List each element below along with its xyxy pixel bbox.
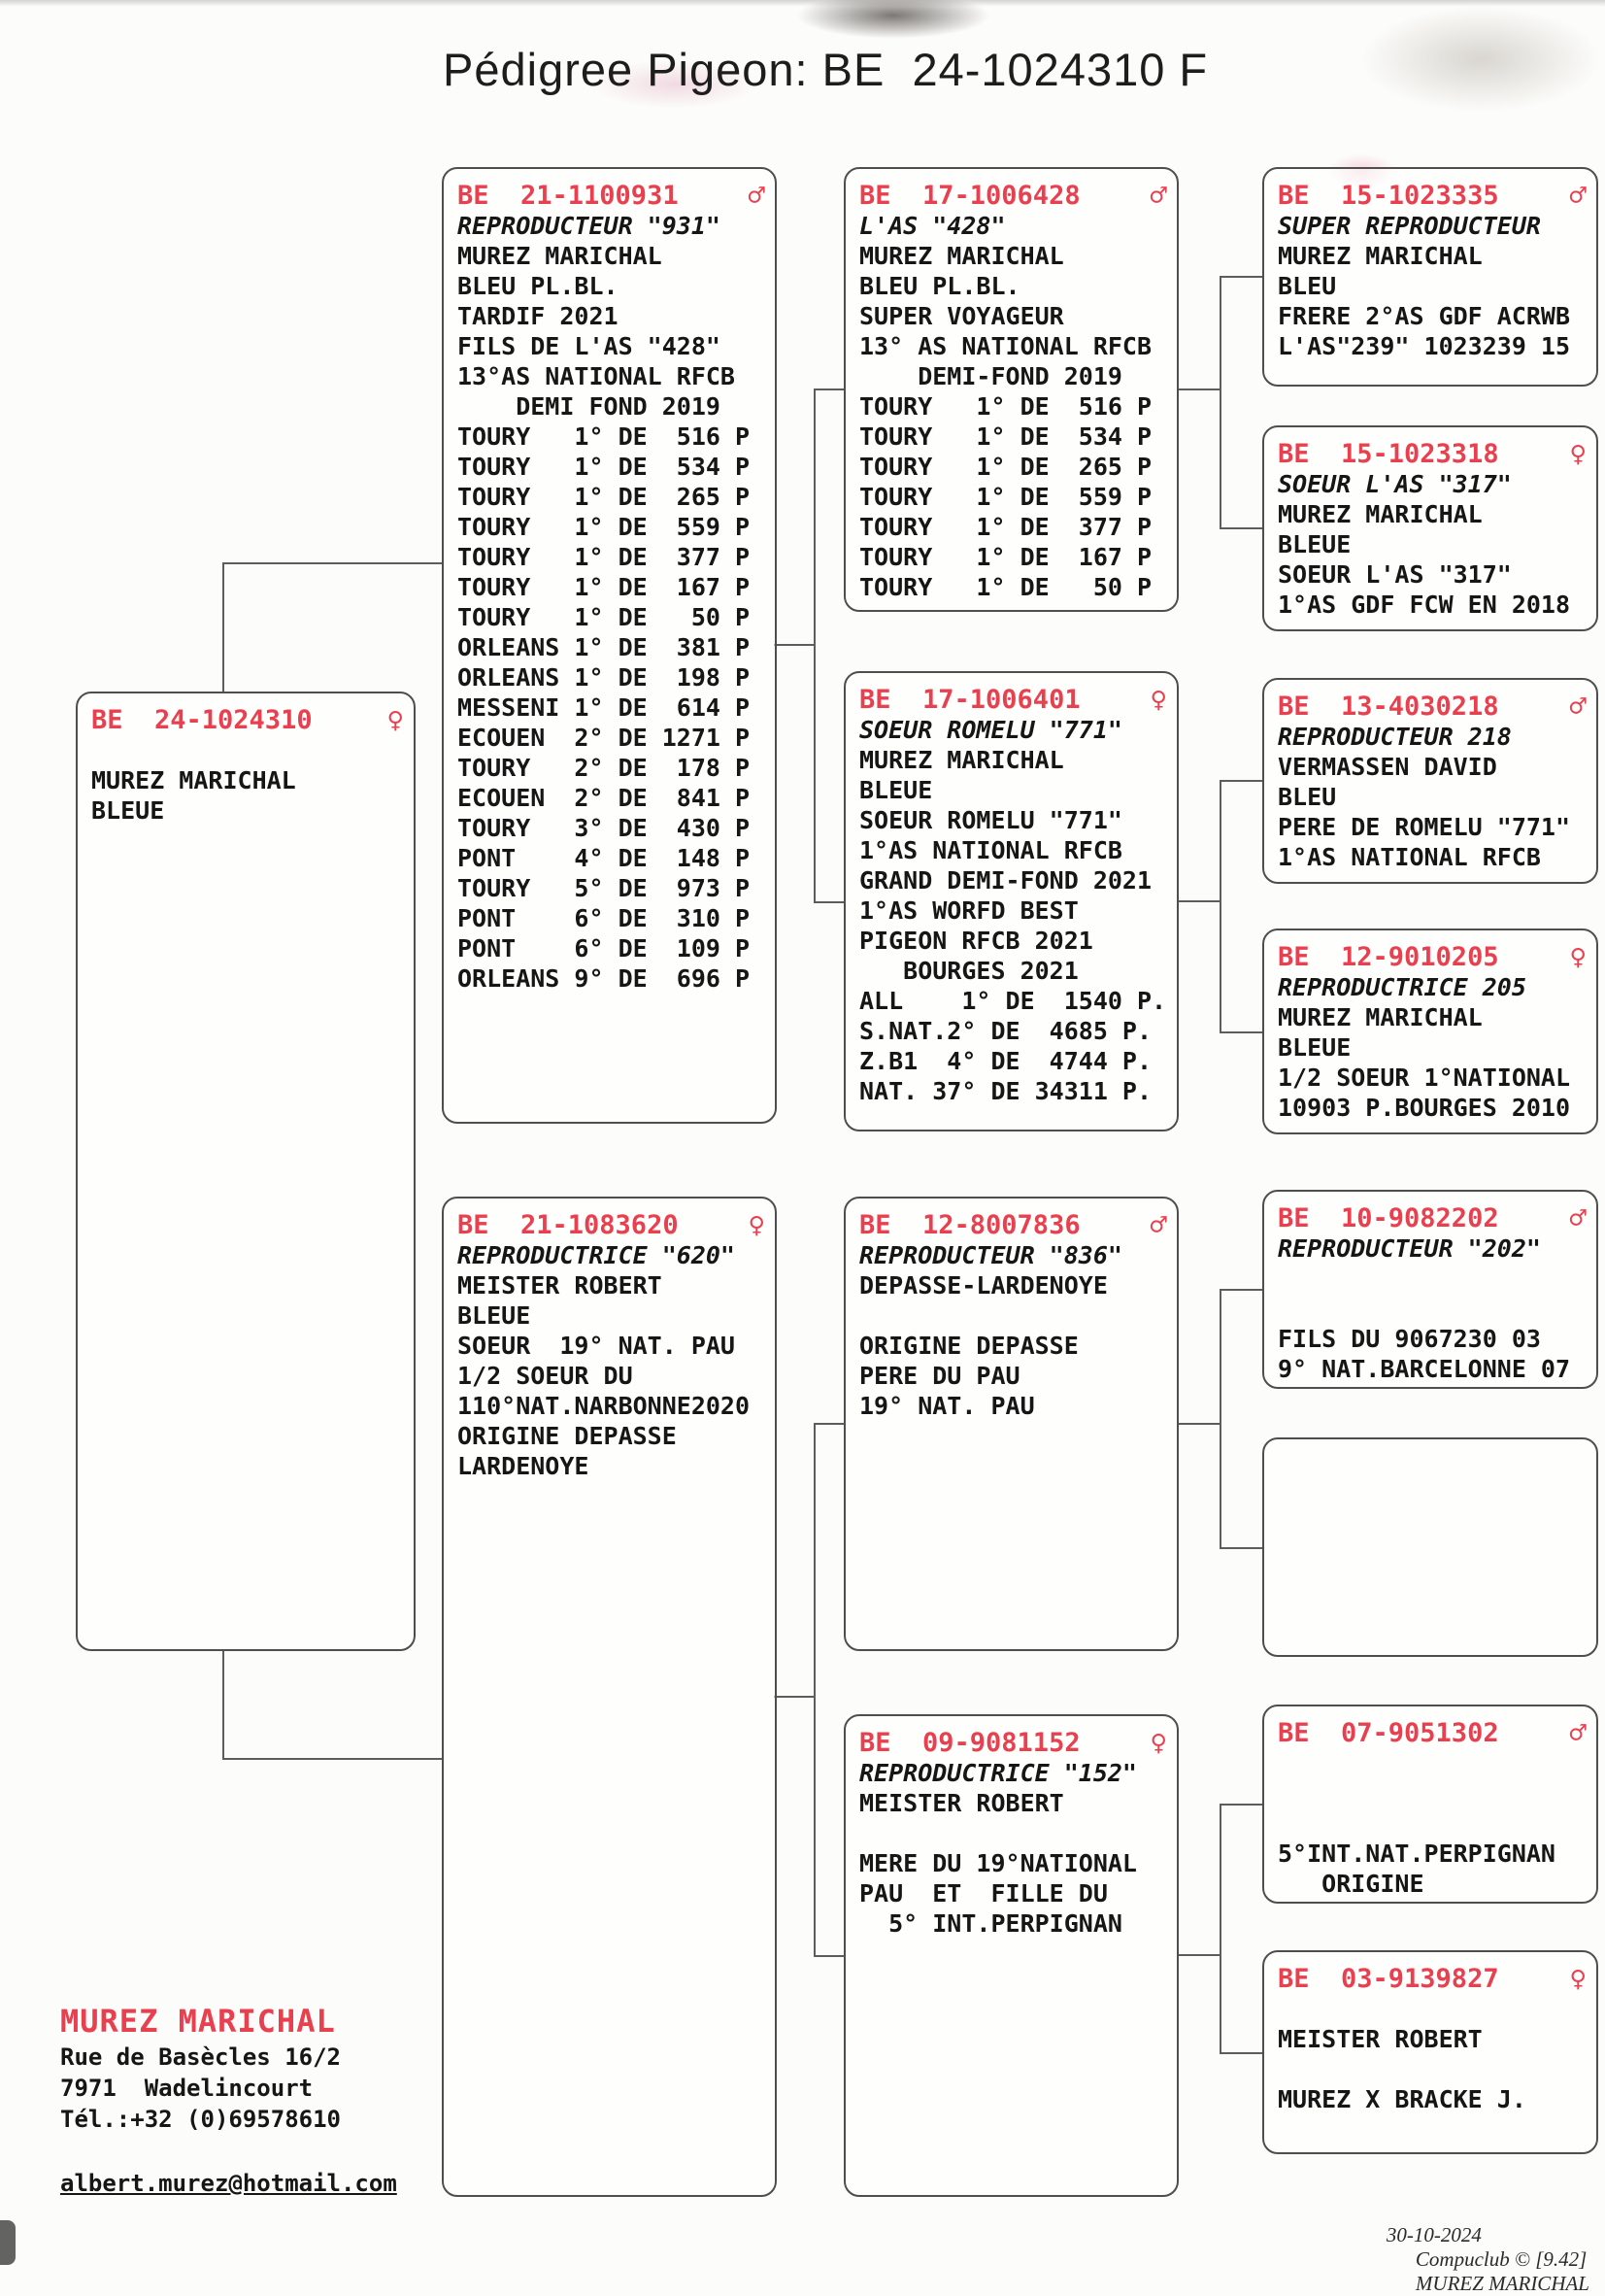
pigeon-name: REPRODUCTRICE "620"	[457, 1240, 765, 1270]
text-line: L'AS"239" 1023239 15	[1278, 331, 1587, 361]
pedigree-box-dd-sire: BE 07-9051302 ♂ 5°INT.NAT.PERPIGNAN ORIG…	[1262, 1705, 1598, 1904]
connector-line	[814, 901, 844, 903]
breeder-phone: Tél.:+32 (0)69578610	[60, 2106, 341, 2133]
box-header: BE 13-4030218 ♂	[1278, 692, 1587, 722]
pigeon-details: MEISTER ROBERTBLEUESOEUR 19° NAT. PAU1/2…	[457, 1270, 765, 1481]
text-line: MUREZ MARICHAL	[1278, 1002, 1587, 1032]
text-line: BLEU PL.BL.	[859, 271, 1167, 301]
text-line	[1278, 2054, 1587, 2084]
pigeon-details: DEPASSE-LARDENOYE ORIGINE DEPASSEPERE DU…	[859, 1270, 1167, 1421]
pedigree-box-sd-sire: BE 13-4030218 ♂ REPRODUCTEUR 218 VERMASS…	[1262, 678, 1598, 884]
box-header: BE 03-9139827 ♀	[1278, 1964, 1587, 1994]
ring-number: BE 03-9139827	[1278, 1964, 1499, 1994]
text-line: S.NAT.2° DE 4685 P.	[859, 1016, 1167, 1046]
pigeon-details: MUREZ MARICHALBLEUE1/2 SOEUR 1°NATIONAL1…	[1278, 1002, 1587, 1123]
text-line	[1278, 1294, 1587, 1324]
pigeon-name: SOEUR ROMELU "771"	[859, 715, 1167, 745]
breeder-email: albert.murez@hotmail.com	[60, 2170, 397, 2197]
text-line: GRAND DEMI-FOND 2021	[859, 865, 1167, 895]
text-line	[859, 1818, 1167, 1848]
page-title: Pédigree Pigeon: BE 24-1024310 F	[443, 43, 1208, 96]
text-line: MEISTER ROBERT	[859, 1788, 1167, 1818]
ring-number: BE 17-1006401	[859, 685, 1081, 715]
text-line: MUREZ MARICHAL	[1278, 241, 1587, 271]
ring-number: BE 10-9082202	[1278, 1203, 1499, 1233]
text-line: ORIGINE DEPASSE	[859, 1331, 1167, 1361]
pigeon-name: REPRODUCTEUR "202"	[1278, 1233, 1587, 1264]
text-line: ORLEANS 9° DE 696 P	[457, 963, 765, 994]
male-icon: ♂	[1570, 181, 1587, 211]
pigeon-details: MUREZ MARICHALBLEUESOEUR ROMELU "771"1°A…	[859, 745, 1167, 1106]
breeder-name: MUREZ MARICHAL	[60, 2003, 336, 2040]
text-line	[91, 735, 404, 765]
connector-line	[774, 644, 816, 646]
footer-software: Compuclub © [9.42]	[1416, 2247, 1587, 2271]
text-line: TOURY 1° DE 516 P	[859, 391, 1167, 422]
text-line: MUREZ X BRACKE J.	[1278, 2084, 1587, 2114]
text-line: TOURY 1° DE 377 P	[859, 512, 1167, 542]
text-line: FILS DE L'AS "428"	[457, 331, 765, 361]
text-line	[859, 1300, 1167, 1331]
breeder-address-city: 7971 Wadelincourt	[60, 2075, 313, 2102]
text-line: TOURY 1° DE 50 P	[859, 572, 1167, 602]
pigeon-details: MUREZ MARICHALBLEU PL.BL.TARDIF 2021FILS…	[457, 241, 765, 994]
pigeon-name: REPRODUCTEUR "836"	[859, 1240, 1167, 1270]
text-line: TOURY 1° DE 516 P	[457, 422, 765, 452]
box-header: BE 15-1023318 ♀	[1278, 439, 1587, 469]
text-line: MUREZ MARICHAL	[1278, 499, 1587, 529]
text-line: 13°AS NATIONAL RFCB	[457, 361, 765, 391]
connector-line	[222, 562, 442, 564]
text-line: FRERE 2°AS GDF ACRWB	[1278, 301, 1587, 331]
box-header: BE 17-1006401 ♀	[859, 685, 1167, 715]
text-line: TOURY 1° DE 534 P	[457, 452, 765, 482]
male-icon: ♂	[1151, 181, 1167, 211]
pigeon-details: MEISTER ROBERT MERE DU 19°NATIONALPAU ET…	[859, 1788, 1167, 1939]
connector-line	[222, 1758, 442, 1760]
pedigree-box-dam-sire: BE 12-8007836 ♂ REPRODUCTEUR "836" DEPAS…	[844, 1197, 1179, 1651]
female-icon: ♀	[1570, 439, 1587, 469]
text-line: BLEU	[1278, 782, 1587, 812]
female-icon: ♀	[387, 705, 404, 735]
text-line	[1278, 1808, 1587, 1839]
ring-number: BE 09-9081152	[859, 1728, 1081, 1758]
text-line: TOURY 1° DE 50 P	[457, 602, 765, 632]
connector-line	[1220, 1804, 1262, 1806]
ring-number: BE 12-8007836	[859, 1210, 1081, 1240]
female-icon: ♀	[1570, 942, 1587, 972]
text-line: DEMI FOND 2019	[457, 391, 765, 422]
text-line	[1278, 1994, 1587, 2024]
text-line: BLEUE	[859, 775, 1167, 805]
male-icon: ♂	[1570, 1203, 1587, 1233]
text-line: MESSENI 1° DE 614 P	[457, 692, 765, 723]
document-footer: 30-10-2024 Compuclub © [9.42] MUREZ MARI…	[1376, 2199, 1589, 2296]
text-line	[1278, 1778, 1587, 1808]
female-icon: ♀	[1570, 1964, 1587, 1994]
pigeon-name: REPRODUCTEUR "931"	[457, 211, 765, 241]
pedigree-box-dam-dam: BE 09-9081152 ♀ REPRODUCTRICE "152" MEIS…	[844, 1714, 1179, 2197]
male-icon: ♂	[749, 181, 765, 211]
pedigree-box-sire-sire: BE 17-1006428 ♂ L'AS "428" MUREZ MARICHA…	[844, 167, 1179, 612]
text-line: TARDIF 2021	[457, 301, 765, 331]
text-line: BLEUE	[1278, 1032, 1587, 1063]
connector-line	[1220, 1804, 1221, 2054]
pedigree-box-ss-sire: BE 15-1023335 ♂ SUPER REPRODUCTEUR MUREZ…	[1262, 167, 1598, 387]
footer-date: 30-10-2024	[1387, 2223, 1482, 2246]
pedigree-box-sire-dam: BE 17-1006401 ♀ SOEUR ROMELU "771" MUREZ…	[844, 671, 1179, 1131]
text-line: 1°AS NATIONAL RFCB	[859, 835, 1167, 865]
text-line: TOURY 5° DE 973 P	[457, 873, 765, 903]
text-line: FILS DU 9067230 03	[1278, 1324, 1587, 1354]
connector-line	[1177, 388, 1220, 390]
text-line: 110°NAT.NARBONNE2020	[457, 1391, 765, 1421]
text-line: SUPER VOYAGEUR	[859, 301, 1167, 331]
text-line: BLEU	[1278, 271, 1587, 301]
ring-number: BE 21-1100931	[457, 181, 679, 211]
text-line: TOURY 1° DE 534 P	[859, 422, 1167, 452]
pigeon-details: FILS DU 9067230 039° NAT.BARCELONNE 07	[1278, 1264, 1587, 1384]
text-line: TOURY 1° DE 265 P	[859, 452, 1167, 482]
pigeon-name: REPRODUCTEUR 218	[1278, 722, 1587, 752]
text-line: TOURY 1° DE 559 P	[859, 482, 1167, 512]
pedigree-box-dd-dam: BE 03-9139827 ♀ MEISTER ROBERT MUREZ X B…	[1262, 1950, 1598, 2154]
text-line: TOURY 3° DE 430 P	[457, 813, 765, 843]
connector-line	[814, 388, 816, 903]
box-header: BE 12-8007836 ♂	[859, 1210, 1167, 1240]
text-line: BLEUE	[1278, 529, 1587, 559]
text-line: TOURY 1° DE 559 P	[457, 512, 765, 542]
text-line	[1278, 1748, 1587, 1778]
text-line: TOURY 1° DE 377 P	[457, 542, 765, 572]
connector-line	[1220, 1289, 1262, 1291]
text-line: 13° AS NATIONAL RFCB	[859, 331, 1167, 361]
scan-artifact	[0, 0, 1605, 7]
box-header: BE 09-9081152 ♀	[859, 1728, 1167, 1758]
connector-line	[814, 1955, 844, 1957]
text-line: MERE DU 19°NATIONAL	[859, 1848, 1167, 1878]
ring-number: BE 13-4030218	[1278, 692, 1499, 722]
scan-artifact	[796, 0, 990, 39]
text-line: 1°AS WORFD BEST	[859, 895, 1167, 926]
text-line: MUREZ MARICHAL	[91, 765, 404, 795]
ring-number: BE 12-9010205	[1278, 942, 1499, 972]
text-line: SOEUR L'AS "317"	[1278, 559, 1587, 590]
text-line: VERMASSEN DAVID	[1278, 752, 1587, 782]
pedigree-box-ss-dam: BE 15-1023318 ♀ SOEUR L'AS "317" MUREZ M…	[1262, 425, 1598, 631]
text-line: ORLEANS 1° DE 198 P	[457, 662, 765, 692]
text-line: 1/2 SOEUR 1°NATIONAL	[1278, 1063, 1587, 1093]
connector-line	[1177, 900, 1220, 902]
connector-line	[1220, 276, 1221, 529]
pigeon-name: L'AS "428"	[859, 211, 1167, 241]
pigeon-details: VERMASSEN DAVIDBLEUPERE DE ROMELU "771"1…	[1278, 752, 1587, 872]
text-line: TOURY 2° DE 178 P	[457, 753, 765, 783]
connector-line	[1220, 527, 1262, 529]
box-header: BE 07-9051302 ♂	[1278, 1718, 1587, 1748]
female-icon: ♀	[1151, 1728, 1167, 1758]
connector-line	[1177, 1423, 1220, 1425]
ring-number: BE 15-1023335	[1278, 181, 1499, 211]
scan-artifact	[0, 2220, 16, 2265]
ring-number: BE 21-1083620	[457, 1210, 679, 1240]
connector-line	[1220, 2052, 1262, 2054]
connector-line	[1220, 276, 1262, 278]
connector-line	[1220, 780, 1262, 782]
male-icon: ♂	[1570, 692, 1587, 722]
connector-line	[1220, 1031, 1262, 1033]
pedigree-box-ds-dam-empty	[1262, 1437, 1598, 1657]
text-line: MEISTER ROBERT	[1278, 2024, 1587, 2054]
pigeon-details: MUREZ MARICHALBLEU PL.BL.SUPER VOYAGEUR1…	[859, 241, 1167, 602]
text-line: 9° NAT.BARCELONNE 07	[1278, 1354, 1587, 1384]
text-line: 5° INT.PERPIGNAN	[859, 1908, 1167, 1939]
pedigree-box-sire: BE 21-1100931 ♂ REPRODUCTEUR "931" MUREZ…	[442, 167, 777, 1124]
text-line: PIGEON RFCB 2021	[859, 926, 1167, 956]
box-header: BE 10-9082202 ♂	[1278, 1203, 1587, 1233]
pedigree-box-dam: BE 21-1083620 ♀ REPRODUCTRICE "620" MEIS…	[442, 1197, 777, 2197]
text-line: BLEUE	[91, 795, 404, 826]
box-header: BE 12-9010205 ♀	[1278, 942, 1587, 972]
pigeon-details: MEISTER ROBERT MUREZ X BRACKE J.	[1278, 1994, 1587, 2114]
connector-line	[774, 1696, 816, 1698]
text-line: 1/2 SOEUR DU	[457, 1361, 765, 1391]
connector-line	[1220, 1547, 1262, 1549]
connector-line	[1177, 1954, 1220, 1956]
text-line: DEPASSE-LARDENOYE	[859, 1270, 1167, 1300]
pigeon-details: MUREZ MARICHALBLEUFRERE 2°AS GDF ACRWBL'…	[1278, 241, 1587, 361]
pigeon-name: SUPER REPRODUCTEUR	[1278, 211, 1587, 241]
text-line: PERE DE ROMELU "771"	[1278, 812, 1587, 842]
ring-number: BE 15-1023318	[1278, 439, 1499, 469]
text-line: DEMI-FOND 2019	[859, 361, 1167, 391]
box-header: BE 21-1100931 ♂	[457, 181, 765, 211]
text-line: Z.B1 4° DE 4744 P.	[859, 1046, 1167, 1076]
pigeon-details: MUREZ MARICHALBLEUESOEUR L'AS "317"1°AS …	[1278, 499, 1587, 620]
text-line: NAT. 37° DE 34311 P.	[859, 1076, 1167, 1106]
text-line: MEISTER ROBERT	[457, 1270, 765, 1300]
male-icon: ♂	[1151, 1210, 1167, 1240]
text-line: SOEUR ROMELU "771"	[859, 805, 1167, 835]
box-header: BE 15-1023335 ♂	[1278, 181, 1587, 211]
text-line: BOURGES 2021	[859, 956, 1167, 986]
text-line: MUREZ MARICHAL	[457, 241, 765, 271]
text-line: 1°AS NATIONAL RFCB	[1278, 842, 1587, 872]
box-header: BE 24-1024310 ♀	[91, 705, 404, 735]
text-line: 19° NAT. PAU	[859, 1391, 1167, 1421]
text-line	[1278, 1264, 1587, 1294]
connector-line	[814, 388, 844, 390]
breeder-address-street: Rue de Basècles 16/2	[60, 2043, 341, 2071]
text-line: ORIGINE	[1278, 1869, 1587, 1899]
scan-artifact	[1359, 6, 1602, 113]
text-line: ORIGINE DEPASSE	[457, 1421, 765, 1451]
text-line: 10903 P.BOURGES 2010	[1278, 1093, 1587, 1123]
pedigree-box-ds-sire: BE 10-9082202 ♂ REPRODUCTEUR "202" FILS …	[1262, 1190, 1598, 1389]
text-line: ECOUEN 2° DE 1271 P	[457, 723, 765, 753]
text-line: ALL 1° DE 1540 P.	[859, 986, 1167, 1016]
pigeon-details: MUREZ MARICHALBLEUE	[91, 735, 404, 826]
text-line: TOURY 1° DE 265 P	[457, 482, 765, 512]
connector-line	[222, 1649, 224, 1760]
text-line: LARDENOYE	[457, 1451, 765, 1481]
text-line: PONT 6° DE 310 P	[457, 903, 765, 933]
text-line: PAU ET FILLE DU	[859, 1878, 1167, 1908]
connector-line	[1220, 1289, 1221, 1549]
male-icon: ♂	[1570, 1718, 1587, 1748]
connector-line	[814, 1424, 816, 1957]
connector-line	[814, 1423, 844, 1425]
female-icon: ♀	[1151, 685, 1167, 715]
pigeon-name: REPRODUCTRICE "152"	[859, 1758, 1167, 1788]
pigeon-name: REPRODUCTRICE 205	[1278, 972, 1587, 1002]
text-line: BLEU PL.BL.	[457, 271, 765, 301]
connector-line	[222, 563, 224, 693]
text-line: 5°INT.NAT.PERPIGNAN	[1278, 1839, 1587, 1869]
pedigree-box-sd-dam: BE 12-9010205 ♀ REPRODUCTRICE 205 MUREZ …	[1262, 929, 1598, 1134]
text-line: ECOUEN 2° DE 841 P	[457, 783, 765, 813]
pedigree-box-subject: BE 24-1024310 ♀ MUREZ MARICHALBLEUE	[76, 692, 416, 1651]
text-line: SOEUR 19° NAT. PAU	[457, 1331, 765, 1361]
ring-number: BE 17-1006428	[859, 181, 1081, 211]
box-header: BE 17-1006428 ♂	[859, 181, 1167, 211]
ring-number: BE 24-1024310	[91, 705, 313, 735]
text-line: MUREZ MARICHAL	[859, 241, 1167, 271]
text-line: PONT 4° DE 148 P	[457, 843, 765, 873]
text-line: MUREZ MARICHAL	[859, 745, 1167, 775]
text-line: ORLEANS 1° DE 381 P	[457, 632, 765, 662]
footer-owner: MUREZ MARICHAL	[1416, 2272, 1589, 2295]
ring-number: BE 07-9051302	[1278, 1718, 1499, 1748]
text-line: 1°AS GDF FCW EN 2018	[1278, 590, 1587, 620]
female-icon: ♀	[749, 1210, 765, 1240]
connector-line	[1220, 780, 1221, 1033]
text-line: PERE DU PAU	[859, 1361, 1167, 1391]
text-line: PONT 6° DE 109 P	[457, 933, 765, 963]
pigeon-name: SOEUR L'AS "317"	[1278, 469, 1587, 499]
text-line: TOURY 1° DE 167 P	[457, 572, 765, 602]
text-line: BLEUE	[457, 1300, 765, 1331]
box-header: BE 21-1083620 ♀	[457, 1210, 765, 1240]
text-line: TOURY 1° DE 167 P	[859, 542, 1167, 572]
pigeon-details: 5°INT.NAT.PERPIGNAN ORIGINE	[1278, 1748, 1587, 1899]
